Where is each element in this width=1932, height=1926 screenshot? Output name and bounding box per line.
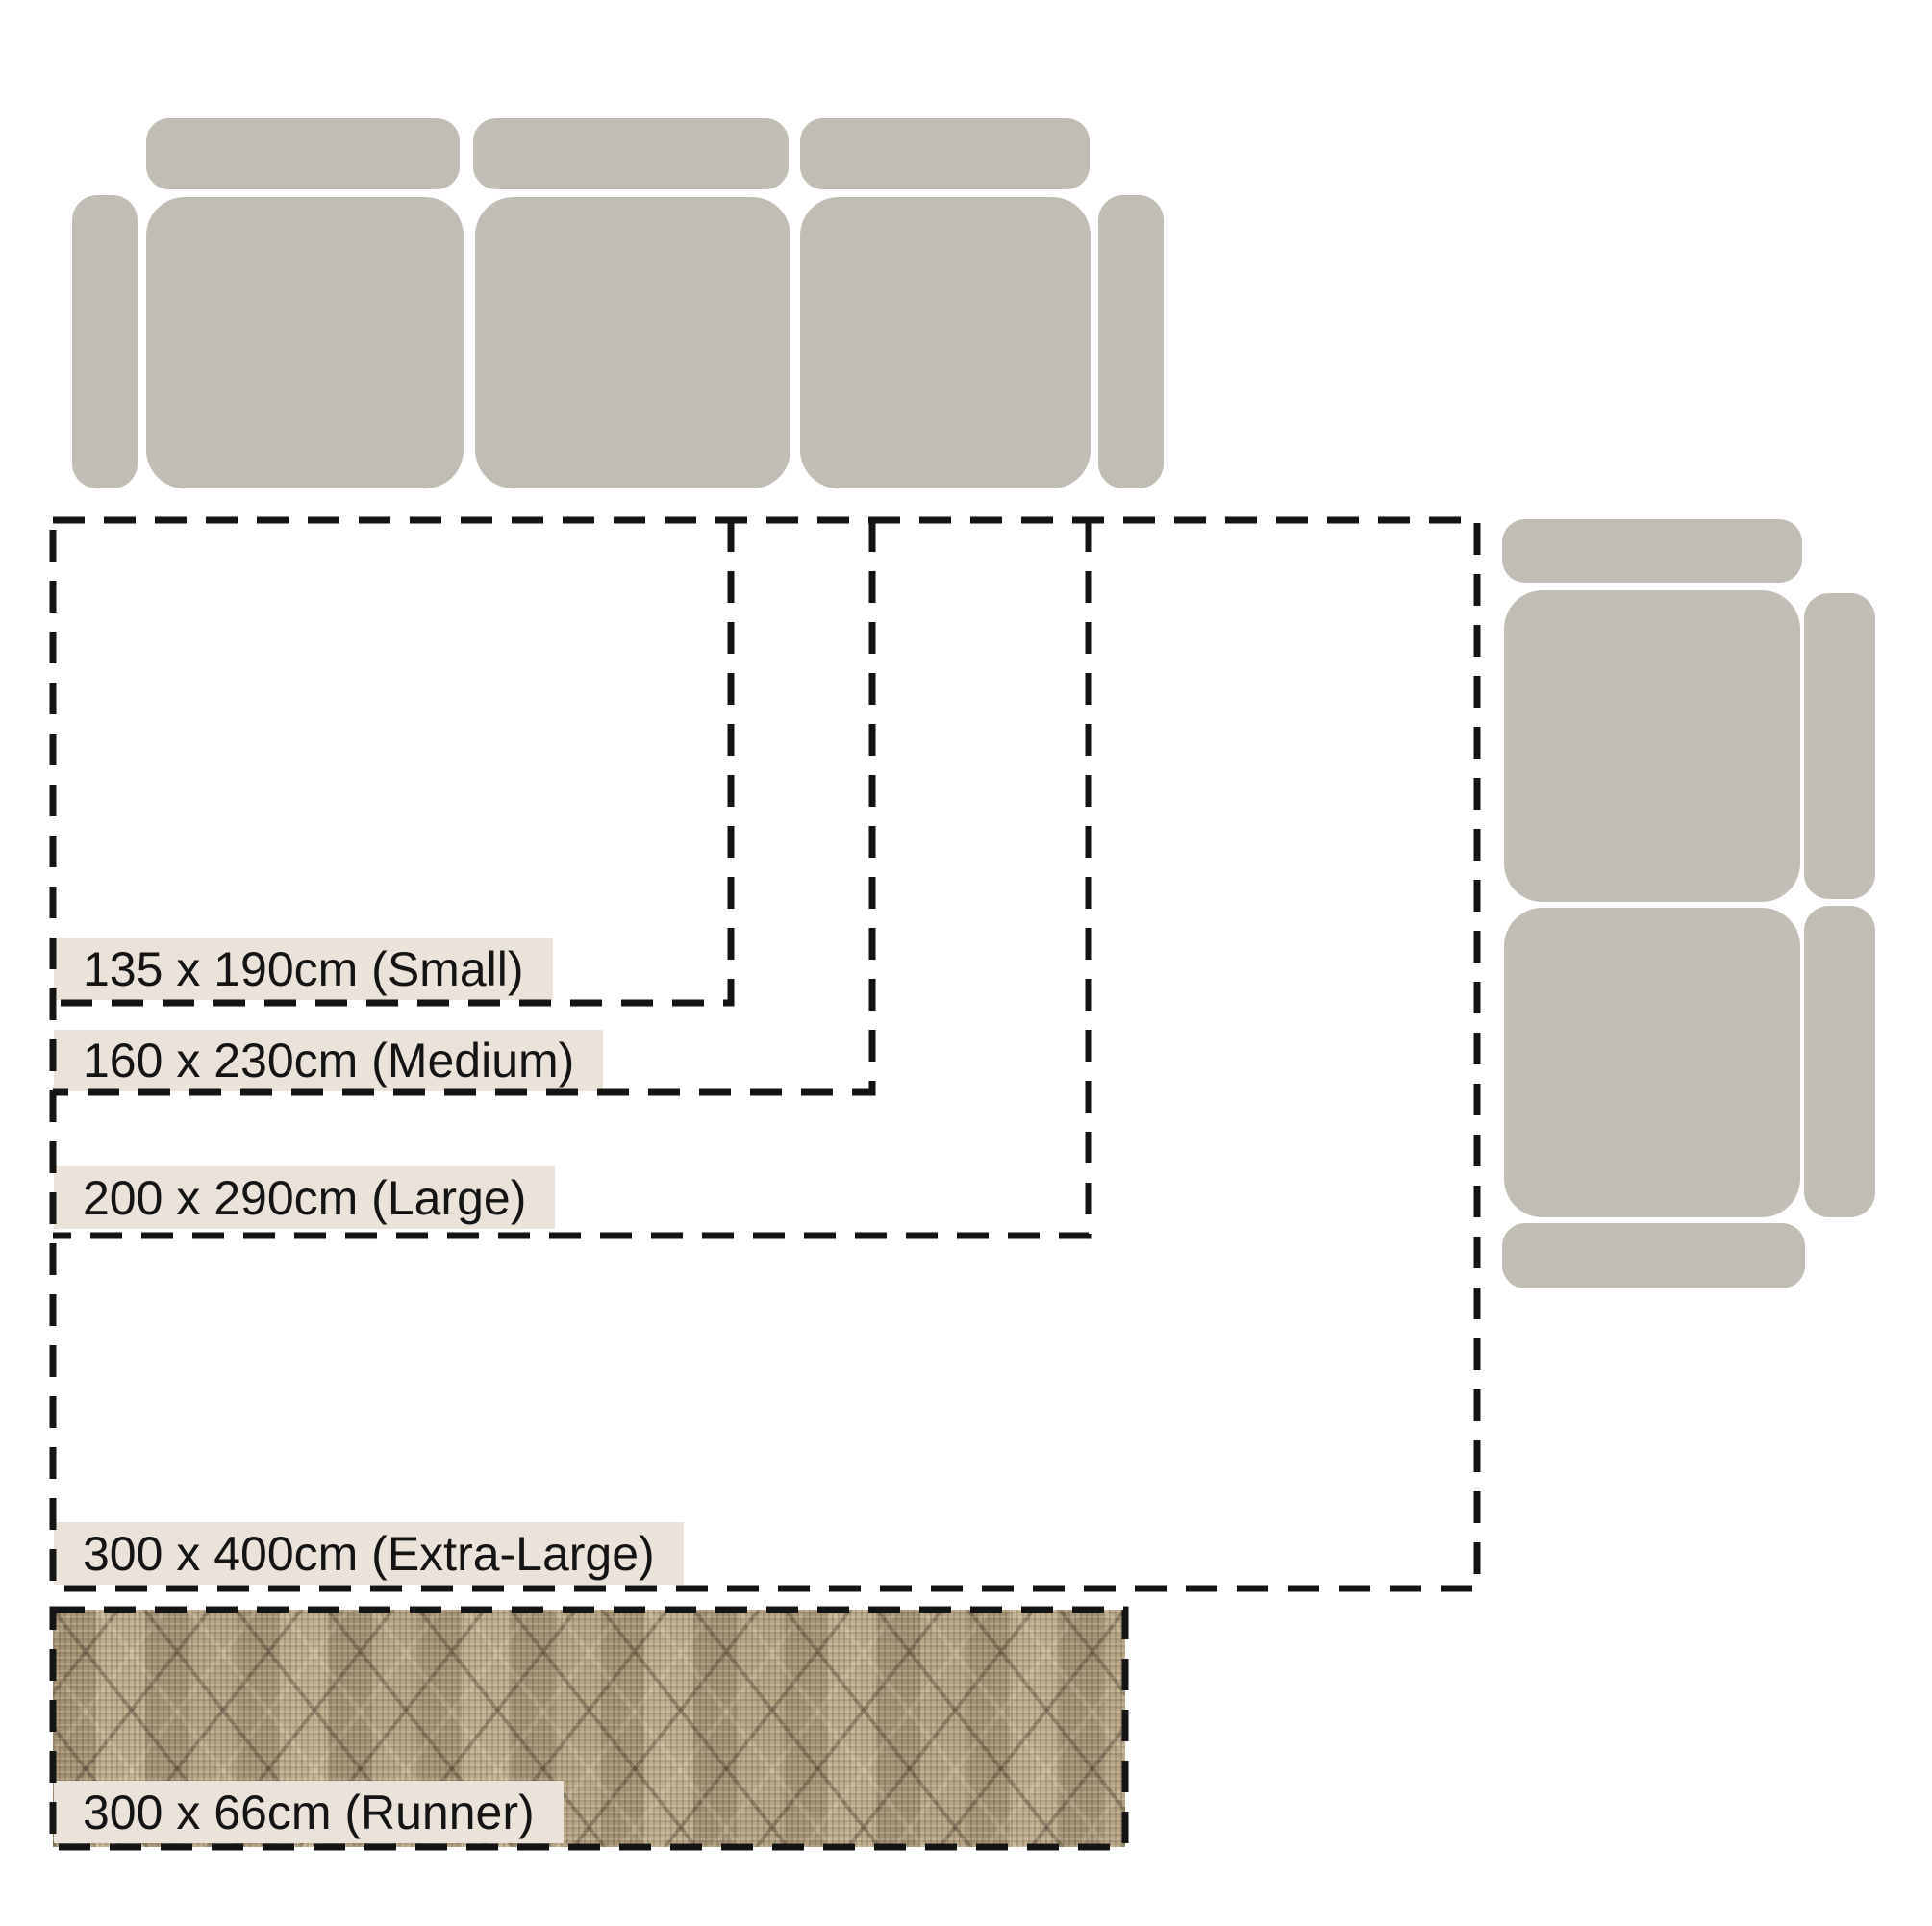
rug-label-medium: 160 x 230cm (Medium) (54, 1030, 603, 1091)
sofa-right-armrest-top (1502, 519, 1802, 583)
rug-size-guide: 135 x 190cm (Small) 160 x 230cm (Medium)… (0, 0, 1932, 1926)
sofa-top-seat-cushion-3 (800, 197, 1091, 488)
sofa-right-back-cushion-1 (1804, 593, 1875, 899)
sofa-top-seat-cushion-2 (475, 197, 790, 488)
sofa-top-icon (72, 118, 1164, 488)
sofa-right-seat-cushion-2 (1504, 908, 1800, 1217)
rug-label-small: 135 x 190cm (Small) (54, 938, 553, 1000)
sofa-right-armrest-bottom (1502, 1223, 1805, 1288)
rug-label-extra-large: 300 x 400cm (Extra-Large) (54, 1522, 684, 1585)
sofa-top-back-cushion-3 (800, 118, 1090, 189)
sofa-top-back-cushion-2 (473, 118, 789, 189)
sofa-top-back-cushion-1 (146, 118, 460, 189)
sofa-top-armrest-right (1098, 195, 1164, 488)
rug-label-large: 200 x 290cm (Large) (54, 1166, 555, 1229)
sofa-right-seat-cushion-1 (1504, 590, 1800, 902)
sofa-right-back-cushion-2 (1804, 906, 1875, 1217)
sofa-top-seat-cushion-1 (146, 197, 464, 488)
rug-outline-large (53, 520, 1089, 1236)
sofa-top-armrest-left (72, 195, 138, 488)
sofa-right-icon (1502, 519, 1875, 1288)
rug-outline-medium (53, 520, 872, 1092)
rug-outline-small (53, 520, 731, 1003)
rug-label-runner: 300 x 66cm (Runner) (54, 1781, 564, 1843)
